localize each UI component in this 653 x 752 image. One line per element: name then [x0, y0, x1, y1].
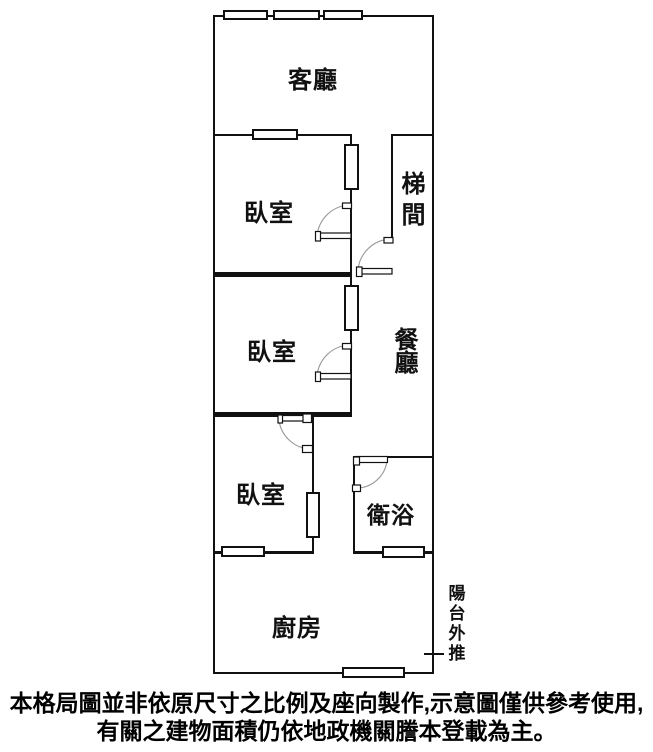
- window-living-top-3: [323, 10, 363, 20]
- wall-bedroom1-bottom: [213, 272, 352, 277]
- window-bedroom1-right: [344, 144, 359, 190]
- door-bedroom1: [316, 203, 352, 241]
- door-bedroom3: [278, 414, 313, 453]
- balcony-note-label: 陽台外推: [447, 584, 467, 664]
- floor-plan: 客廳 臥室 梯間 臥室 餐廳 臥室 衛浴 廚房 陽台外推 本格局圖並非依原尺寸之…: [0, 0, 653, 752]
- disclaimer-line-2: 有關之建物面積仍依地政機關謄本登載為主。: [0, 712, 653, 746]
- balcony-note-tick: [424, 653, 444, 655]
- wall-bathroom-top: [353, 456, 434, 458]
- door-bedroom2: [316, 344, 352, 382]
- room-label-bedroom2: 臥室: [247, 332, 297, 367]
- door-stairwell: [357, 238, 394, 277]
- door-swings-layer: [0, 0, 653, 752]
- wall-bathroom-left: [353, 456, 355, 553]
- room-label-living: 客廳: [288, 60, 338, 95]
- room-label-dining: 餐廳: [393, 329, 420, 375]
- room-label-stairwell: 梯間: [400, 169, 427, 231]
- window-kitchen-bottom: [342, 667, 405, 678]
- window-bedroom3-bottom: [221, 546, 265, 557]
- wall-outer-left: [213, 15, 215, 674]
- wall-stairwell-left: [391, 134, 393, 242]
- window-bedroom2-right: [344, 285, 359, 331]
- window-living-bottom: [252, 129, 298, 140]
- window-bedroom3-right: [306, 492, 320, 538]
- wall-stairwell-top: [392, 134, 434, 136]
- room-label-bathroom: 衛浴: [367, 496, 415, 530]
- window-living-top-2: [273, 10, 320, 20]
- window-bathroom-bottom: [382, 546, 425, 558]
- room-label-bedroom1: 臥室: [244, 193, 294, 228]
- door-bathroom: [353, 457, 388, 492]
- room-label-kitchen: 廚房: [272, 608, 322, 643]
- wall-outer-right: [432, 15, 434, 674]
- wall-bedroom2-bottom: [213, 412, 352, 417]
- room-label-bedroom3: 臥室: [236, 475, 286, 510]
- window-living-top-1: [223, 10, 268, 20]
